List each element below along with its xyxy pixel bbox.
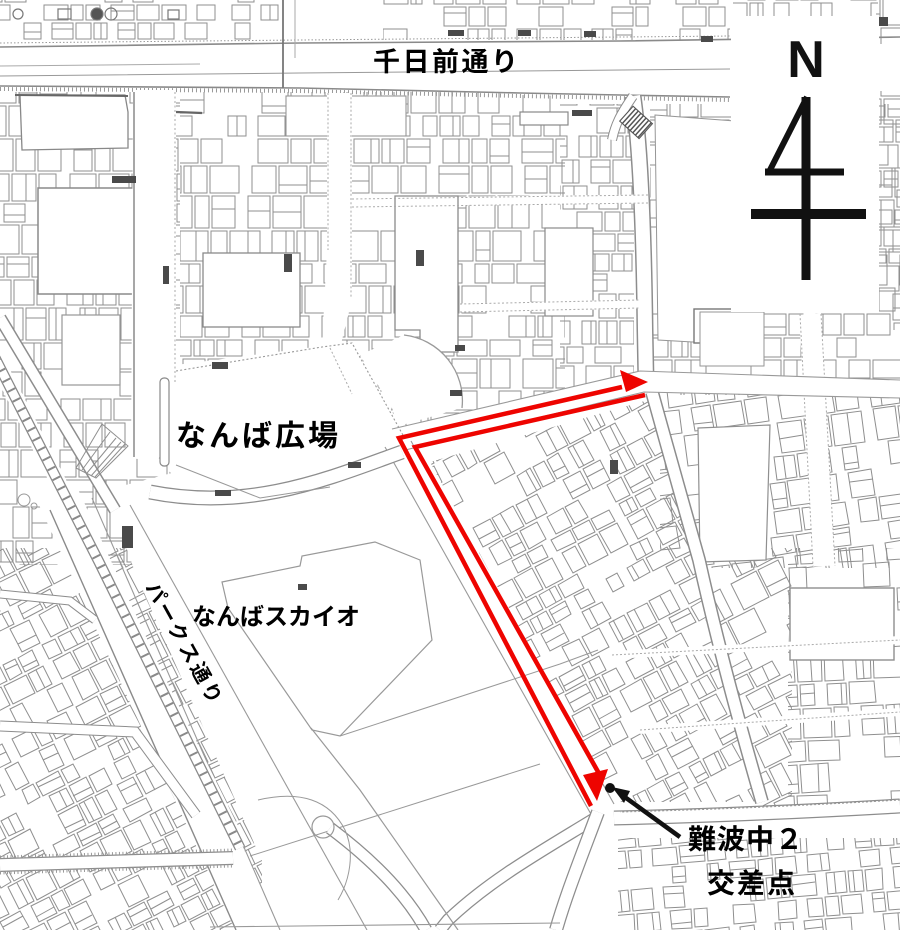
svg-text:N: N (787, 31, 825, 89)
